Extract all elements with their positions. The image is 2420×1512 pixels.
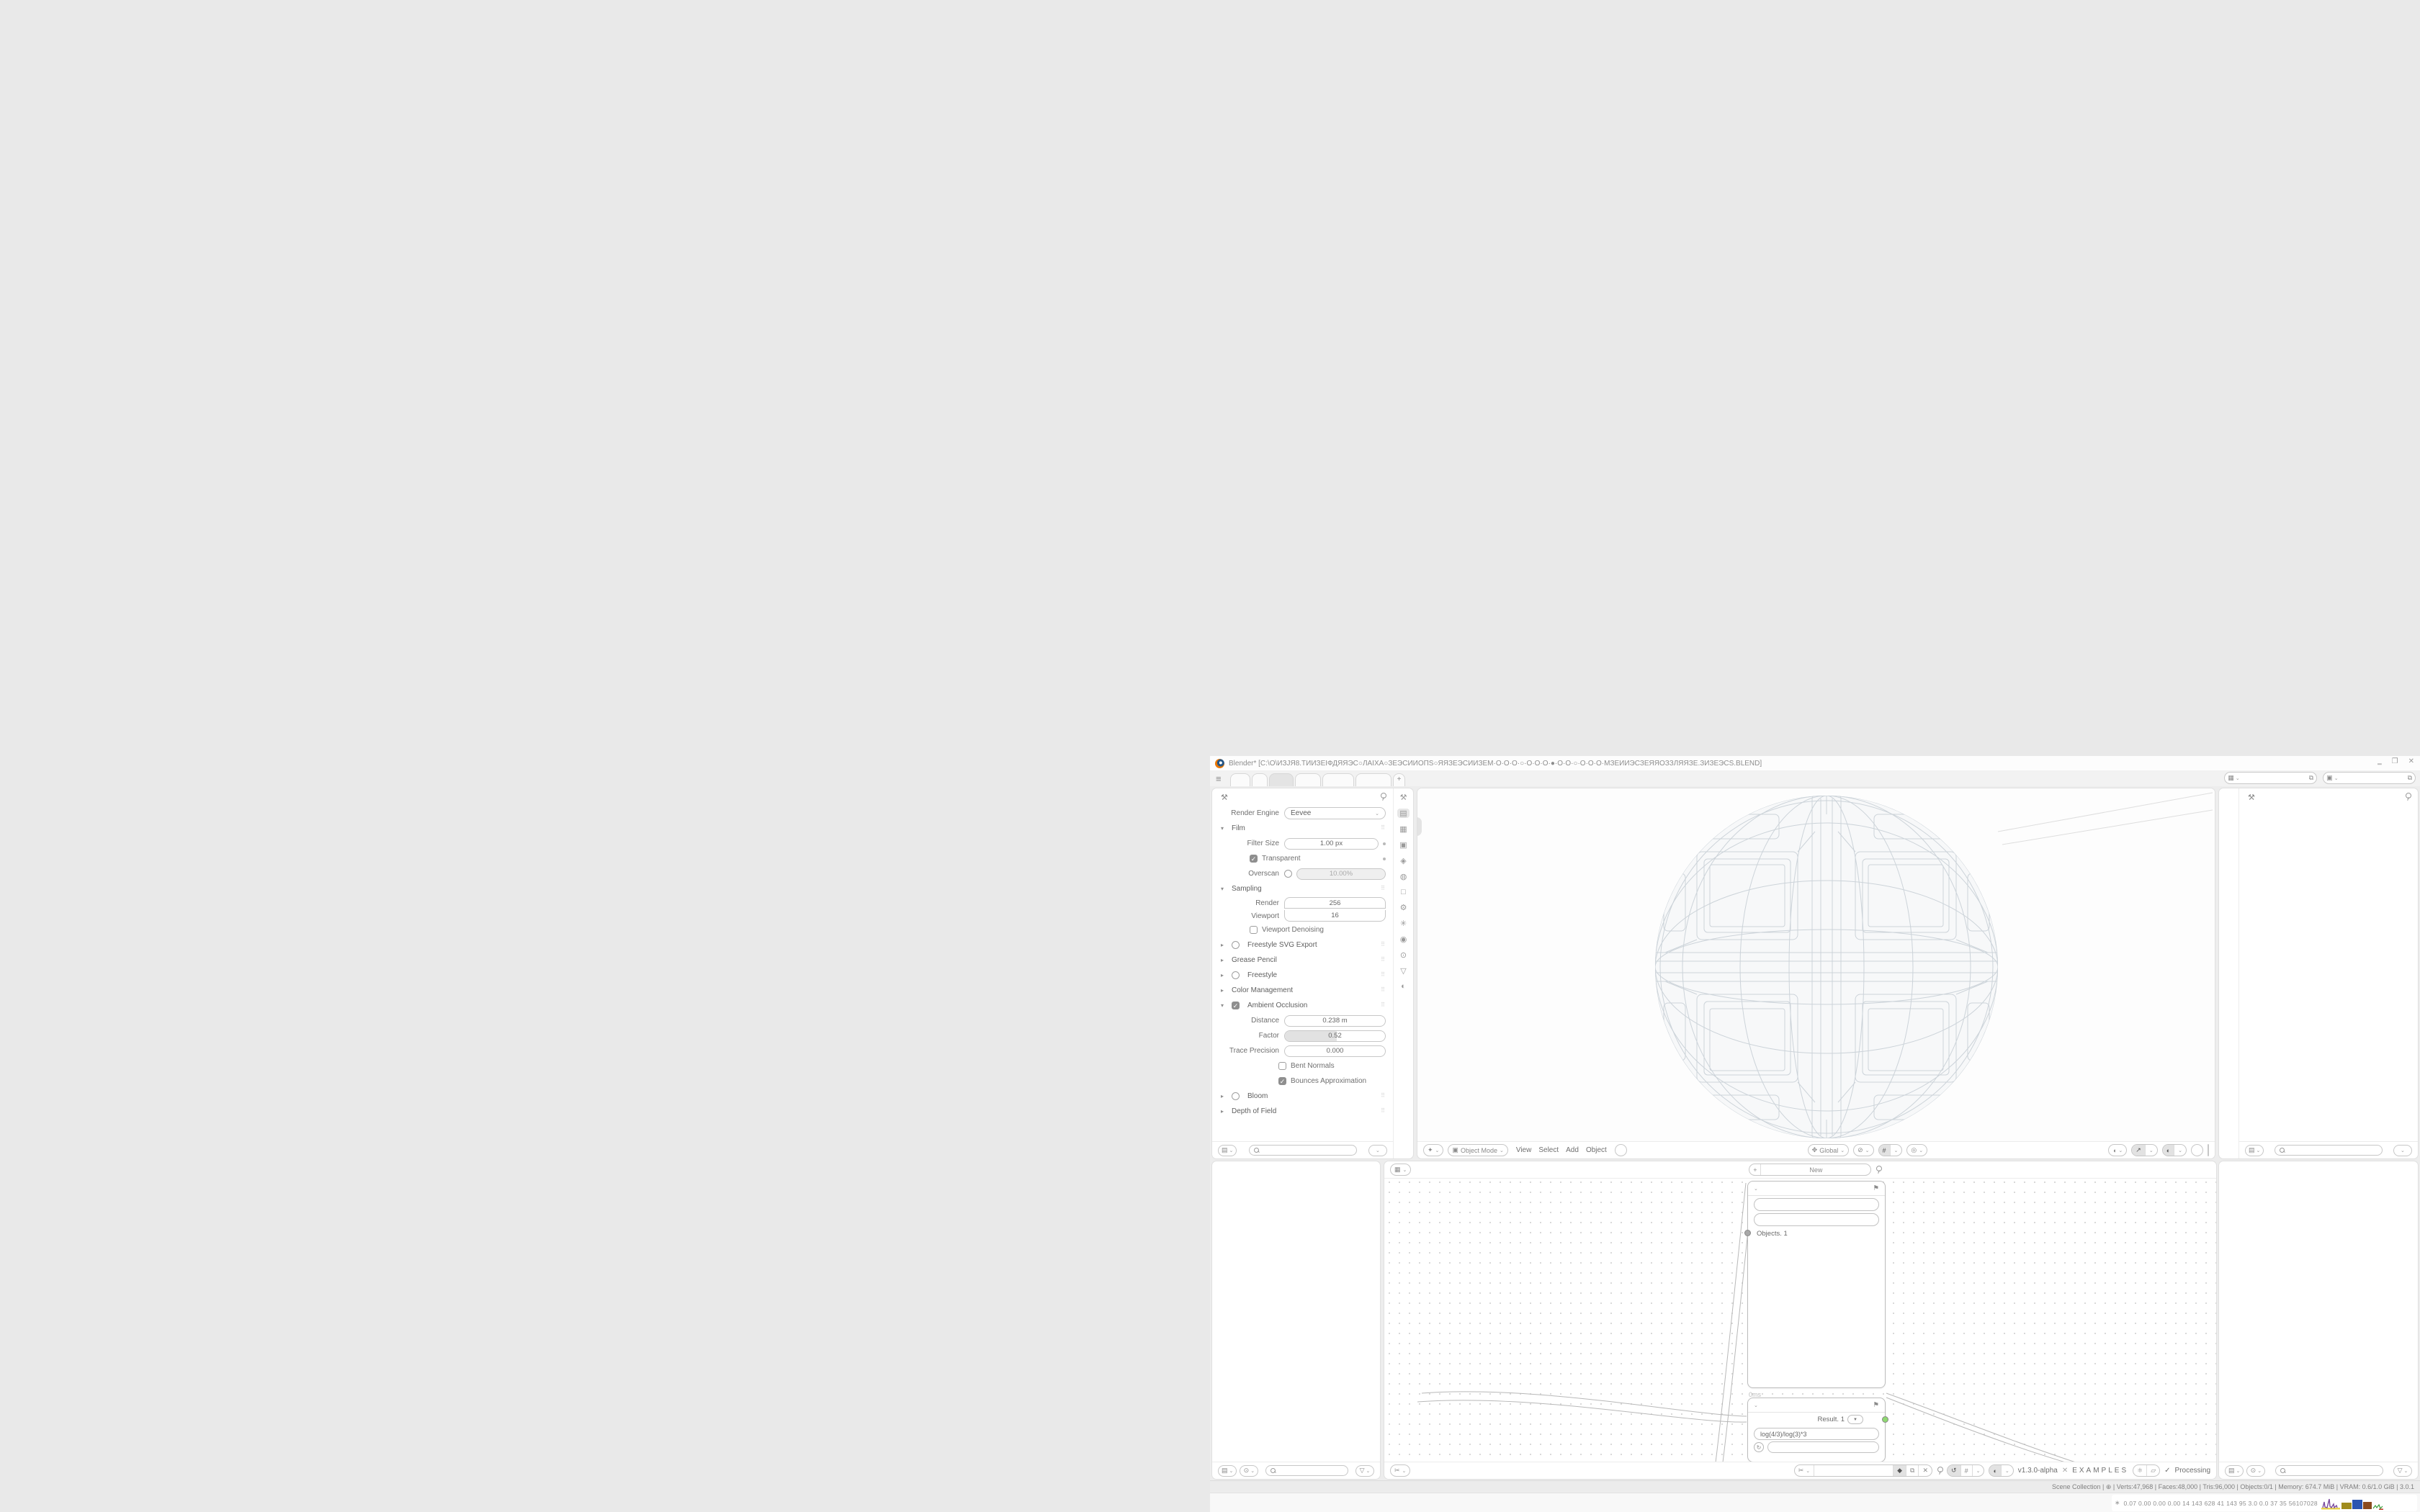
properties-footer: ▤ ⌄ ⌄ xyxy=(1212,1141,1393,1158)
value-field[interactable]: 1.00 px xyxy=(1284,838,1379,850)
menu-add[interactable]: Add xyxy=(1562,1146,1582,1154)
checkbox[interactable]: ✓ xyxy=(1250,855,1258,863)
checkbox[interactable]: ✓ xyxy=(1278,1077,1286,1085)
properties-context-icon: ⚒ xyxy=(1221,793,1228,806)
new-nodetree-button[interactable]: +New xyxy=(1749,1164,1871,1176)
formula-input[interactable]: log(4/3)/log(3)*3 xyxy=(1754,1428,1879,1440)
overlays-dropdown[interactable]: ◐⌄ xyxy=(2162,1144,2187,1156)
material-preview-dropdown[interactable]: ◐⌄ xyxy=(1989,1464,2013,1477)
workspace-tab[interactable] xyxy=(1269,773,1294,786)
options-chevron-button[interactable]: ⌄ xyxy=(1368,1145,1387,1156)
editor-type-button[interactable]: ▤ ⌄ xyxy=(2245,1145,2264,1156)
checkbox[interactable] xyxy=(1250,926,1258,934)
node-tool-icon: ⚑ xyxy=(1873,1401,1879,1409)
result-dropdown[interactable]: ▼ xyxy=(1847,1415,1863,1424)
outliner-footer: ▤⌄ ⊙⌄ ▽⌄ xyxy=(1212,1462,1380,1479)
section-toggle[interactable] xyxy=(1232,1092,1240,1100)
value-field[interactable]: 256 xyxy=(1284,897,1386,909)
section-toggle[interactable]: ✓ xyxy=(1232,1002,1240,1009)
viewlayer-name-field[interactable] xyxy=(2341,773,2405,783)
perf-icon: ∗ xyxy=(2115,1499,2120,1507)
editor-type-dropdown[interactable]: ✦⌄ xyxy=(1423,1144,1443,1156)
outliner-filter-button[interactable]: ▽⌄ xyxy=(2393,1465,2412,1477)
section-toggle[interactable] xyxy=(1232,971,1240,979)
quadrant-top-left-mirrored xyxy=(0,0,1210,756)
properties-footer: ▤ ⌄ ⌄ xyxy=(2239,1141,2418,1158)
outliner-left: ▤⌄ ⊙⌄ ▽⌄ xyxy=(1211,1161,1381,1480)
node-canvas[interactable]: ⌄ ⚑ Objects. 1 0ms ⌄ ⚑ xyxy=(1384,1177,2216,1463)
step-buttons xyxy=(1767,1441,1879,1453)
nav-tab-icon[interactable]: ▦ xyxy=(1399,824,1407,834)
value-field[interactable]: 16 xyxy=(1284,910,1386,922)
editor-type-button[interactable]: ▤ ⌄ xyxy=(1218,1145,1237,1156)
nav-tab-icon[interactable]: ⊙ xyxy=(1400,950,1407,960)
workspace-tab[interactable] xyxy=(1252,773,1268,786)
properties-rows: Render EngineEevee⌄▾Film⠿Filter Size1.00… xyxy=(1221,806,1386,1119)
perf-numbers: 0.07 0.00 0.00 0.00 14 143 628 41 143 95… xyxy=(2124,1500,2318,1507)
outliner-right: ▤⌄ ⊙⌄ ▽⌄ xyxy=(2218,1161,2419,1480)
status-bar: Scene Collection | ⊕ | Verts:47,968 | Fa… xyxy=(1210,1480,2420,1493)
new-label: New xyxy=(1760,1164,1870,1175)
properties-nav-tabs: ⚒▤▦▣◈◍□⚙✳◉⊙▽◐ xyxy=(1393,788,1413,1158)
search-icon xyxy=(1270,1468,1276,1473)
section-toggle[interactable] xyxy=(1232,941,1240,949)
output-socket[interactable] xyxy=(1882,1416,1888,1423)
pin-icon[interactable] xyxy=(1875,1166,1881,1174)
section-header[interactable]: ▸Freestyle SVG Export⠿ xyxy=(1221,937,1386,953)
collapse-icon[interactable]: ⌄ xyxy=(1754,1403,1758,1408)
pin-icon[interactable] xyxy=(2405,793,2411,801)
properties-context-icon: ⚒ xyxy=(2248,793,2255,806)
outliner-tree xyxy=(1212,1163,1380,1462)
collapse-icon[interactable]: ⌄ xyxy=(1754,1186,1758,1192)
close-icon[interactable]: ✕ xyxy=(1918,1465,1932,1476)
node-formula[interactable]: ⌄ ⚑ Result. 1 ▼ log(4/3)/log(3)*3 ↻ xyxy=(1747,1398,1886,1462)
overscan-toggle[interactable] xyxy=(1284,870,1292,878)
orientation-dropdown[interactable]: ✥ Global⌄ xyxy=(1808,1144,1849,1156)
orientation-label: Global xyxy=(1819,1147,1838,1154)
tree-name-field xyxy=(1814,1465,1893,1476)
outliner-mode-button[interactable]: ⊙⌄ xyxy=(2246,1465,2265,1477)
copy-icon[interactable]: ⧉ xyxy=(1906,1465,1918,1476)
scene-stats: Scene Collection | ⊕ | Verts:47,968 | Fa… xyxy=(2052,1483,2414,1491)
viewlayer-selector[interactable]: ▣⌄ ⧉ xyxy=(2323,772,2416,784)
blender-logo-icon xyxy=(1215,759,1224,768)
menu-select[interactable]: Select xyxy=(1535,1146,1562,1154)
outliner-tree xyxy=(2219,1163,2418,1462)
toolbar-handle[interactable] xyxy=(1417,817,1422,836)
project-name: EXAMPLES xyxy=(2072,1467,2128,1475)
viewport-header: ✦⌄ ▣ Object Mode⌄ ViewSelectAddObject ✥ … xyxy=(1417,1141,2215,1158)
workspace-tab[interactable] xyxy=(1295,773,1321,786)
outliner-footer: ▤⌄ ⊙⌄ ▽⌄ xyxy=(2219,1462,2418,1479)
node-editor-bottom-header: ✂⌄ ✂⌄ ◆ ⧉ ✕ ↺#⌄ ◐⌄ v1.3.0-alpha ✕ EXAMPL… xyxy=(1384,1462,2216,1479)
extra-tool-button[interactable] xyxy=(1615,1144,1627,1156)
nav-tab-icon[interactable]: ◉ xyxy=(1400,935,1407,944)
outliner-search-input[interactable] xyxy=(2275,1465,2383,1476)
show-gizmo-dropdown[interactable]: ◖⌄ xyxy=(2108,1144,2127,1156)
nav-tab-icon[interactable]: ⚙ xyxy=(1400,903,1407,912)
value-field[interactable]: 10.00% xyxy=(1296,868,1386,880)
copy-scene-icon[interactable]: ⧉ xyxy=(2306,773,2316,783)
node-editor-top-header: ▦⌄ +New xyxy=(1384,1161,2216,1179)
copy-viewlayer-icon[interactable]: ⧉ xyxy=(2405,773,2415,783)
editor-type-dropdown[interactable]: ▦⌄ xyxy=(1390,1164,1411,1176)
scene-selector[interactable]: ▦⌄ ⧉ xyxy=(2224,772,2317,784)
mode-dropdown[interactable]: ▣ Object Mode⌄ xyxy=(1448,1144,1507,1156)
search-icon xyxy=(2280,1468,2285,1473)
editor-type-dropdown[interactable]: ✂⌄ xyxy=(1390,1464,1410,1477)
quadrant-top-right-mirrored xyxy=(1210,0,2420,756)
outliner-display-mode-button[interactable]: ▤⌄ xyxy=(2225,1465,2244,1477)
tree-selector[interactable]: ✂⌄ ◆ ⧉ ✕ xyxy=(1794,1464,1932,1477)
section-header[interactable]: ▾✓Ambient Occlusion⠿ xyxy=(1221,998,1386,1013)
properties-editor-right: ⚒ ▤ ⌄ ⌄ xyxy=(2218,788,2419,1159)
properties-search-input[interactable] xyxy=(2275,1145,2383,1156)
workspace-tabs-row: ≡ + ▦⌄ ⧉ ▣⌄ ⧉ xyxy=(1210,770,2420,786)
outliner-display-mode-button[interactable]: ▤⌄ xyxy=(1218,1465,1237,1477)
outliner-search-input[interactable] xyxy=(1265,1465,1348,1476)
viewport-3d[interactable]: ✦⌄ ▣ Object Mode⌄ ViewSelectAddObject ✥ … xyxy=(1417,788,2215,1159)
restore-button[interactable]: ❐ xyxy=(2392,757,2398,765)
nav-tab-icon[interactable]: ▤ xyxy=(1397,809,1409,818)
close-button[interactable]: ✕ xyxy=(2408,757,2414,765)
search-icon xyxy=(2280,1148,2285,1153)
proportional-edit-dropdown[interactable]: ◎⌄ xyxy=(1906,1144,1927,1156)
node-tool-icon: ⚑ xyxy=(1873,1184,1879,1192)
node-objects-in[interactable]: ⌄ ⚑ Objects. 1 xyxy=(1747,1181,1886,1388)
processing-label: Processing xyxy=(2175,1467,2210,1475)
objects-input-label: Objects. 1 xyxy=(1757,1230,1788,1238)
node-buttons-1 xyxy=(1754,1198,1879,1211)
workspace-tabs: + xyxy=(1230,773,1407,786)
add-workspace-tab[interactable]: + xyxy=(1393,773,1405,786)
snapping-toggle[interactable]: ⊘⌄ xyxy=(1853,1144,1873,1156)
result-label: Result. 1 xyxy=(1818,1416,1845,1423)
nav-tab-icon[interactable]: ◈ xyxy=(1400,856,1406,865)
sverchok-version: v1.3.0-alpha xyxy=(2018,1467,2058,1475)
search-icon xyxy=(1254,1148,1259,1153)
window-title: Blender* [C:\O\ИЗЈЯ8.ТИИЗЕІФДЯЯЭС○ЛАІХА○… xyxy=(1229,760,1762,768)
examples-buttons[interactable]: ⚛ ▱ xyxy=(2133,1464,2160,1477)
nav-tab-icon[interactable]: ◐ xyxy=(1401,982,1406,991)
mode-label: Object Mode xyxy=(1461,1147,1497,1154)
perf-graphs xyxy=(2321,1496,2383,1511)
nav-tab-icon[interactable]: ◍ xyxy=(1400,872,1407,881)
scene-name-field[interactable] xyxy=(2243,773,2306,783)
nav-tab-icon[interactable]: ⚒ xyxy=(1400,793,1407,802)
workspace-tab[interactable] xyxy=(1355,773,1391,786)
gizmos-dropdown[interactable]: ↗⌄ xyxy=(2131,1144,2157,1156)
outliner-mode-button[interactable]: ⊙⌄ xyxy=(1240,1465,1258,1477)
pin-icon[interactable] xyxy=(1380,793,1386,801)
refresh-icon[interactable]: ↻ xyxy=(1754,1442,1764,1452)
node-editor[interactable]: ▦⌄ +New ⌄ xyxy=(1384,1161,2217,1480)
properties-search-input[interactable] xyxy=(1249,1145,1357,1156)
section-header[interactable]: ▸Grease Pencil⠿ xyxy=(1221,953,1386,968)
value-field[interactable]: 0.000 xyxy=(1284,1045,1386,1057)
node-buttons-2 xyxy=(1754,1213,1879,1226)
workspace-tab[interactable] xyxy=(1230,773,1250,786)
pin-icon[interactable] xyxy=(1937,1467,1942,1475)
dna-icon: ✕ xyxy=(2062,1467,2068,1475)
minimize-button[interactable]: ‗ xyxy=(2378,757,2382,765)
value-field[interactable]: 0.238 m xyxy=(1284,1015,1386,1027)
checkbox[interactable] xyxy=(1278,1062,1286,1070)
menu-object[interactable]: Object xyxy=(1582,1146,1610,1154)
properties-nav-tabs xyxy=(2219,788,2239,1158)
options-chevron-button[interactable]: ⌄ xyxy=(2393,1145,2412,1156)
processing-check-icon: ✓ xyxy=(2164,1467,2170,1475)
section-header[interactable]: ▸Color Management⠿ xyxy=(1221,983,1386,998)
viewport-canvas[interactable] xyxy=(1417,788,2215,1141)
quadrant-bottom-right: Blender* [C:\O\ИЗЈЯ8.ТИИЗЕІФДЯЯЭС○ЛАІХА○… xyxy=(1210,756,2420,1512)
properties-editor-left: ⚒ Render EngineEevee⌄▾Film⠿Filter Size1.… xyxy=(1211,788,1414,1159)
title-bar: Blender* [C:\O\ИЗЈЯ8.ТИИЗЕІФДЯЯЭС○ЛАІХА○… xyxy=(1210,756,2420,770)
outliner-filter-button[interactable]: ▽⌄ xyxy=(1355,1465,1374,1477)
input-socket[interactable] xyxy=(1744,1230,1751,1236)
shield-icon[interactable]: ◆ xyxy=(1893,1465,1906,1476)
taskbar: ∗ 0.07 0.00 0.00 0.00 14 143 628 41 143 … xyxy=(1210,1493,2420,1512)
menu-view[interactable]: View xyxy=(1512,1146,1536,1154)
quadrant-bottom-left-mirrored xyxy=(0,756,1210,1512)
nav-tab-icon[interactable]: ✳ xyxy=(1400,919,1407,928)
workspace-tab[interactable] xyxy=(1322,773,1354,786)
nav-tab-icon[interactable]: ▽ xyxy=(1400,966,1406,976)
app-menu-icon[interactable]: ≡ xyxy=(1216,773,1222,784)
section-header[interactable]: ▸Freestyle⠿ xyxy=(1221,968,1386,983)
section-header[interactable]: ▾Sampling⠿ xyxy=(1221,881,1386,896)
wireframe-sphere xyxy=(1417,788,2215,1141)
xray-toggle[interactable] xyxy=(2191,1144,2203,1156)
history-buttons[interactable]: ↺#⌄ xyxy=(1947,1464,1984,1477)
nav-tab-icon[interactable]: □ xyxy=(1401,888,1406,896)
performance-overlay: ∗ 0.07 0.00 0.00 0.00 14 143 628 41 143 … xyxy=(2112,1495,2417,1511)
nav-tab-icon[interactable]: ▣ xyxy=(1399,840,1407,850)
shading-mode-switch[interactable] xyxy=(2208,1144,2209,1156)
section-header[interactable]: ▸Depth of Field⠿ xyxy=(1221,1104,1386,1119)
viewport-menus: ViewSelectAddObject xyxy=(1512,1146,1610,1154)
slider-field[interactable]: 0.52 xyxy=(1284,1030,1386,1042)
section-header[interactable]: ▾Film⠿ xyxy=(1221,821,1386,836)
render-engine-dropdown[interactable]: Eevee⌄ xyxy=(1284,807,1386,819)
section-header[interactable]: ▸Bloom⠿ xyxy=(1221,1089,1386,1104)
snap-mode-dropdown[interactable]: #⌄ xyxy=(1878,1144,1903,1156)
setting-label: Render Engine xyxy=(1221,809,1284,817)
blender-window: Blender* [C:\O\ИЗЈЯ8.ТИИЗЕІФДЯЯЭС○ЛАІХА○… xyxy=(1210,756,2420,1512)
